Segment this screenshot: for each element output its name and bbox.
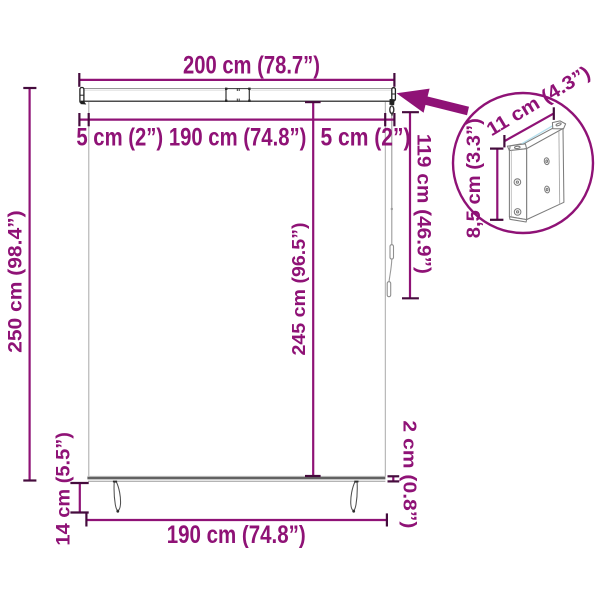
- svg-text:2 cm (0.8”): 2 cm (0.8”): [400, 420, 421, 528]
- svg-text:245 cm (96.5”): 245 cm (96.5”): [288, 223, 309, 356]
- svg-text:5 cm (2”): 5 cm (2”): [321, 124, 411, 152]
- svg-text:5 cm (2”) 190 cm (74.8”): 5 cm (2”) 190 cm (74.8”): [76, 124, 306, 152]
- svg-text:8,5 cm (3.3”): 8,5 cm (3.3”): [463, 118, 485, 238]
- svg-text:190 cm (74.8”): 190 cm (74.8”): [167, 521, 306, 549]
- svg-text:200 cm (78.7”): 200 cm (78.7”): [183, 52, 320, 80]
- svg-text:250 cm (98.4”): 250 cm (98.4”): [5, 210, 27, 353]
- svg-text:14 cm (5.5”): 14 cm (5.5”): [53, 432, 75, 546]
- svg-text:119 cm (46.9”): 119 cm (46.9”): [412, 134, 434, 274]
